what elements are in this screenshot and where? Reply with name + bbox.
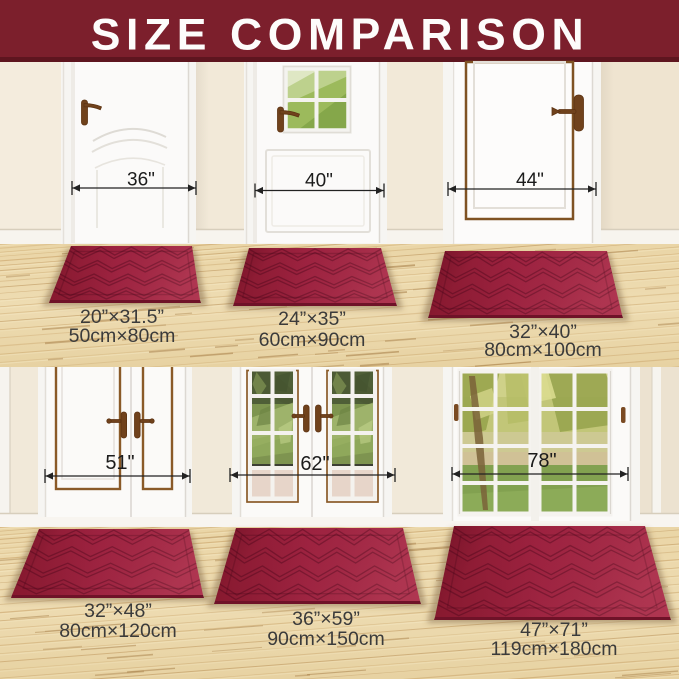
svg-text:50cm×80cm: 50cm×80cm: [69, 325, 176, 347]
svg-text:24”×35”: 24”×35”: [278, 308, 346, 330]
svg-text:SIZE COMPARISON: SIZE COMPARISON: [91, 11, 590, 60]
svg-text:40": 40": [305, 171, 333, 192]
svg-text:62": 62": [300, 453, 329, 475]
svg-text:32”×48”: 32”×48”: [84, 600, 152, 622]
svg-text:90cm×150cm: 90cm×150cm: [267, 628, 385, 650]
svg-text:60cm×90cm: 60cm×90cm: [259, 329, 366, 351]
svg-text:44": 44": [516, 170, 544, 191]
svg-text:36”×59”: 36”×59”: [292, 608, 360, 630]
svg-text:80cm×120cm: 80cm×120cm: [59, 620, 177, 642]
svg-text:78": 78": [527, 450, 556, 472]
svg-text:80cm×100cm: 80cm×100cm: [484, 339, 602, 361]
svg-text:36": 36": [127, 170, 155, 191]
svg-text:51": 51": [105, 452, 134, 474]
svg-text:119cm×180cm: 119cm×180cm: [491, 638, 618, 660]
